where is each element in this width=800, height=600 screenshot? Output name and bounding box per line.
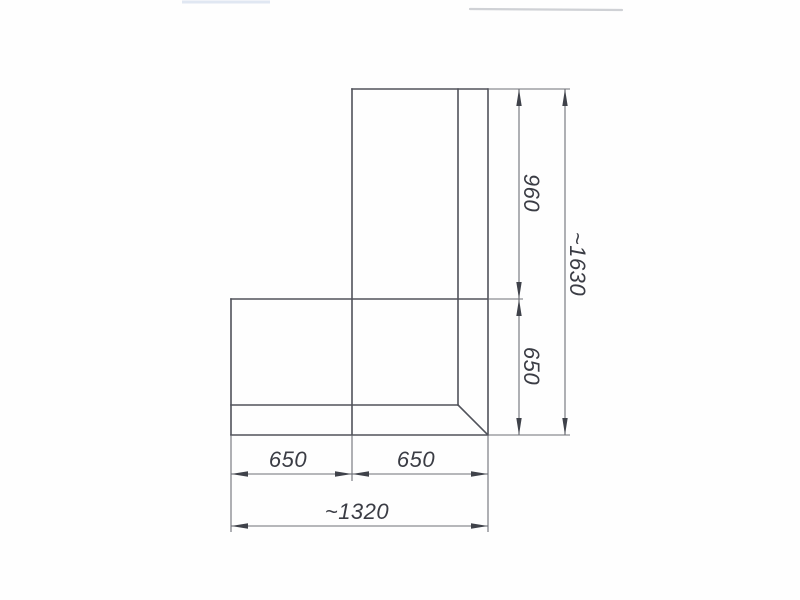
l-shape-outline [231,89,488,435]
arrowhead-right-icon [471,471,488,476]
scanned-drawing-page: 960 650 ~1630 650 650 ~1320 [0,0,800,600]
arrowhead-up-icon [516,299,521,316]
dim-label-650-right: 650 [397,447,435,472]
scan-artifact-gray-streak [470,9,622,10]
arrowhead-right-icon [335,471,352,476]
dimension-labels: 960 650 ~1630 650 650 ~1320 [269,174,590,524]
arrowhead-up-icon [516,89,521,106]
dim-label-650-vertical: 650 [519,347,544,385]
dim-label-1320-overall: ~1320 [325,499,390,524]
dim-label-650-left: 650 [269,447,307,472]
arrowhead-down-icon [516,418,521,435]
arrowhead-left-icon [231,523,248,528]
arrowhead-left-icon [352,471,369,476]
arrowhead-right-icon [471,523,488,528]
arrowhead-down-icon [562,418,567,435]
scan-artifacts [182,2,622,10]
shape-corner-miter-diagonal [458,405,488,435]
arrowhead-up-icon [562,89,567,106]
arrowhead-down-icon [516,282,521,299]
arrowhead-left-icon [231,471,248,476]
dim-label-960: 960 [519,174,544,212]
dim-label-1630-overall: ~1630 [565,232,590,297]
technical-drawing-canvas: 960 650 ~1630 650 650 ~1320 [0,0,800,600]
